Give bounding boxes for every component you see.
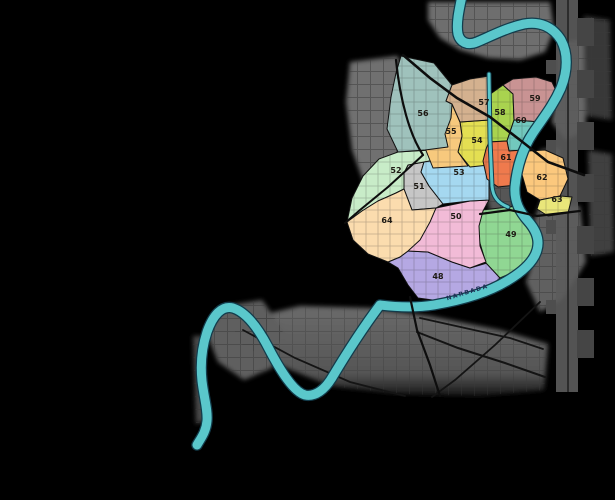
ward-label-59: 59 <box>529 94 541 103</box>
ward-label-63: 63 <box>551 195 562 204</box>
railway-block <box>577 330 594 358</box>
ward-label-64: 64 <box>381 216 393 225</box>
railway-block <box>546 300 556 314</box>
ward-label-48: 48 <box>432 272 444 281</box>
railway-block <box>577 174 594 202</box>
ward-label-55: 55 <box>445 127 457 136</box>
ward-label-50: 50 <box>450 212 462 221</box>
railway-block <box>577 278 594 306</box>
railway-block <box>577 226 594 254</box>
ward-label-62: 62 <box>536 173 547 182</box>
railway-block <box>546 220 556 234</box>
railway-block <box>577 70 594 98</box>
ward-label-54: 54 <box>471 136 483 145</box>
ward-label-49: 49 <box>505 230 517 239</box>
screenshot-stage: 4849505152535455565758596061626364NARBAD… <box>0 0 615 500</box>
ward-label-56: 56 <box>417 109 429 118</box>
ward-map: 4849505152535455565758596061626364NARBAD… <box>0 0 615 500</box>
ward-label-60: 60 <box>515 116 527 125</box>
ward-label-57: 57 <box>478 98 489 107</box>
railway-block <box>546 60 556 74</box>
ward-label-61: 61 <box>500 153 512 162</box>
ward-label-51: 51 <box>413 182 425 191</box>
ward-label-58: 58 <box>494 108 506 117</box>
ward-label-53: 53 <box>453 168 464 177</box>
ward-label-52: 52 <box>390 166 401 175</box>
railway-block <box>577 18 594 46</box>
railway-block <box>577 122 594 150</box>
